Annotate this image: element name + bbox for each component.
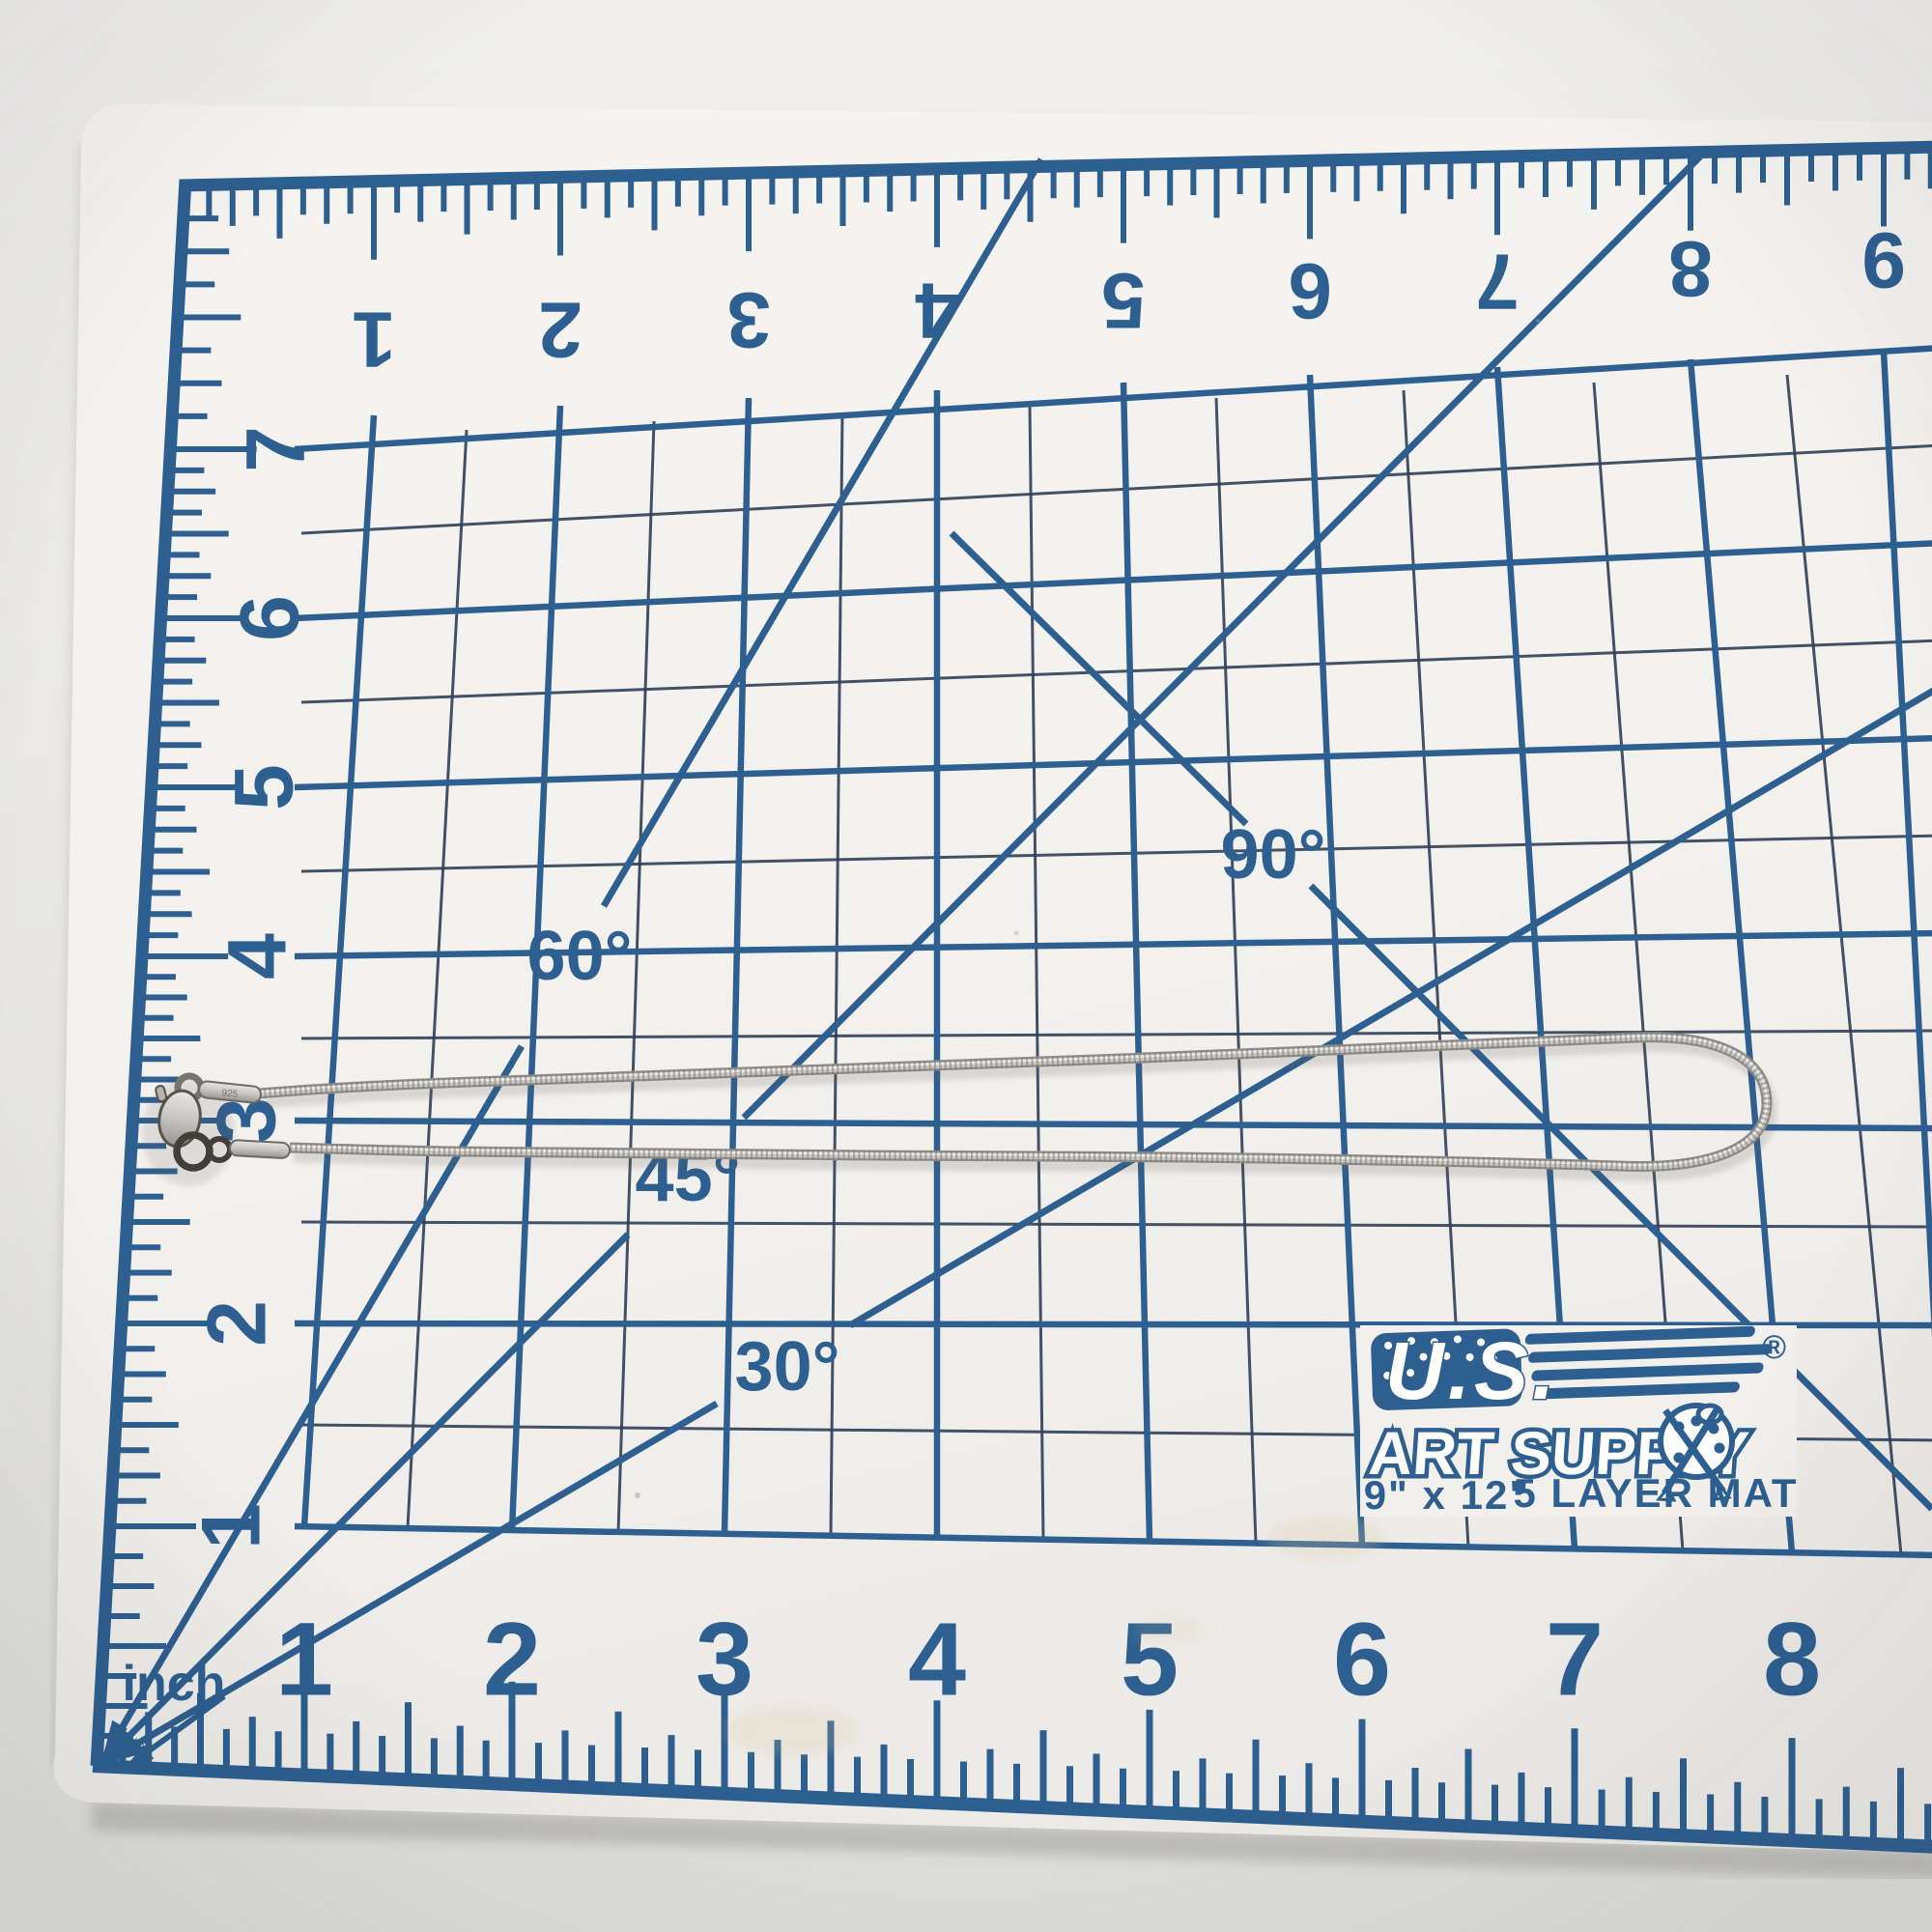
photo-vignette xyxy=(0,0,1932,1932)
photo-stage: 60° 45° 30° 90° U.S. ART SUPPLY xyxy=(0,0,1932,1932)
photograph: 60° 45° 30° 90° U.S. ART SUPPLY xyxy=(0,0,1932,1932)
